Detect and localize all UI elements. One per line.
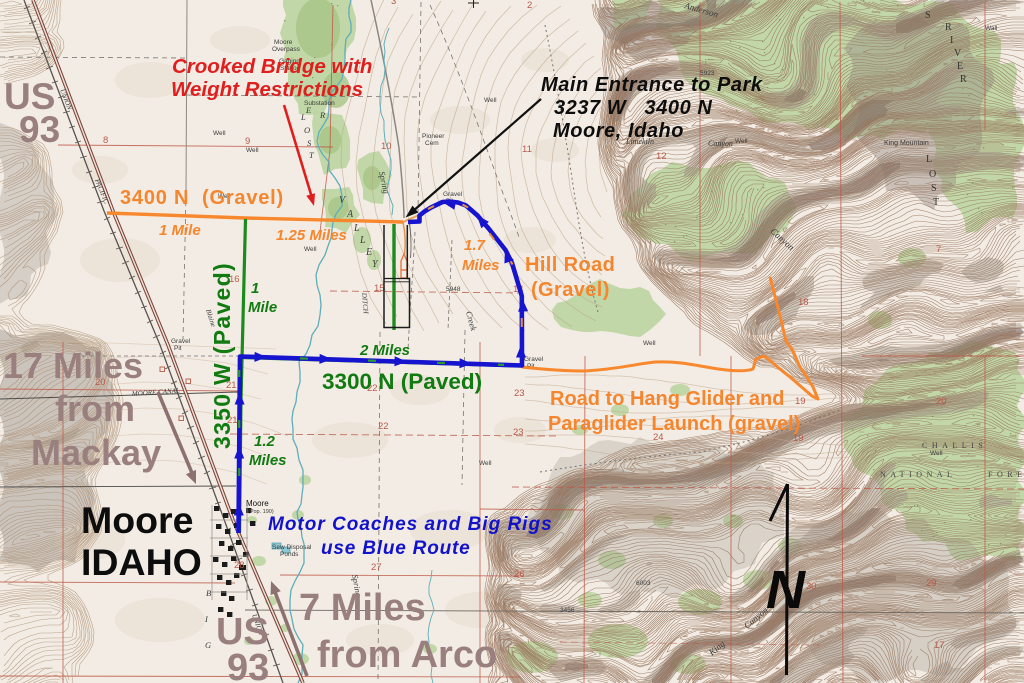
svg-text:Road to Hang Glider and: Road to Hang Glider and <box>550 388 784 410</box>
svg-text:King Mountain: King Mountain <box>884 140 929 147</box>
svg-text:from Arco: from Arco <box>317 634 497 676</box>
svg-text:17 Miles: 17 Miles <box>3 345 143 386</box>
svg-text:Gravel: Gravel <box>524 356 544 363</box>
svg-text:7: 7 <box>936 244 941 255</box>
svg-text:E: E <box>365 247 372 258</box>
svg-text:Canyon: Canyon <box>708 139 733 148</box>
svg-text:1.25 Miles: 1.25 Miles <box>276 227 347 244</box>
svg-text:Main Entrance to Park: Main Entrance to Park <box>541 74 763 96</box>
svg-text:20: 20 <box>936 396 947 407</box>
svg-text:1.2: 1.2 <box>254 433 276 450</box>
svg-text:Wall: Wall <box>985 25 998 32</box>
svg-text:Pit: Pit <box>174 345 182 352</box>
svg-text:Cem: Cem <box>425 140 439 147</box>
svg-text:23: 23 <box>513 427 524 438</box>
svg-text:3237 W 3400 N: 3237 W 3400 N <box>554 97 712 119</box>
svg-text:Gravel: Gravel <box>443 191 463 198</box>
svg-text:L: L <box>359 235 366 246</box>
svg-text:Well: Well <box>735 138 748 145</box>
svg-text:Moore, Idaho: Moore, Idaho <box>553 120 684 142</box>
svg-text:R: R <box>960 74 967 85</box>
svg-text:Well: Well <box>643 340 656 347</box>
svg-text:3: 3 <box>391 0 396 7</box>
svg-text:1.7: 1.7 <box>464 237 486 254</box>
svg-text:28: 28 <box>234 560 245 571</box>
svg-text:Well: Well <box>246 147 259 154</box>
svg-text:Mile: Mile <box>248 299 277 316</box>
svg-text:5948: 5948 <box>446 286 461 293</box>
svg-text:17: 17 <box>934 640 945 651</box>
svg-text:6003: 6003 <box>636 580 651 587</box>
svg-text:1 Mile: 1 Mile <box>159 222 201 239</box>
svg-text:A: A <box>346 209 354 220</box>
svg-text:L: L <box>926 154 932 165</box>
svg-text:Crooked Bridge with: Crooked Bridge with <box>172 55 372 78</box>
svg-text:19: 19 <box>795 396 806 407</box>
svg-text:CHALLIS: CHALLIS <box>922 441 987 450</box>
svg-text:S: S <box>931 183 937 194</box>
svg-text:T: T <box>933 197 939 208</box>
svg-text:1: 1 <box>251 280 259 297</box>
svg-text:3400 N (Gravel): 3400 N (Gravel) <box>120 187 284 209</box>
svg-text:12: 12 <box>656 151 667 162</box>
svg-text:18: 18 <box>798 297 809 308</box>
svg-text:Miles: Miles <box>249 452 287 469</box>
svg-text:FORES: FORES <box>988 470 1024 479</box>
svg-text:Overpass: Overpass <box>272 46 301 53</box>
svg-text:15: 15 <box>374 283 385 294</box>
svg-text:I: I <box>950 35 953 46</box>
svg-text:Well: Well <box>484 97 497 104</box>
svg-text:Gravel: Gravel <box>171 338 191 345</box>
svg-text:Weight Restrictions: Weight Restrictions <box>171 78 363 101</box>
svg-text:use Blue Route: use Blue Route <box>321 538 471 559</box>
svg-text:E: E <box>957 61 963 72</box>
svg-text:IDAHO: IDAHO <box>81 541 202 583</box>
svg-text:Paraglider Launch (gravel): Paraglider Launch (gravel) <box>548 413 800 435</box>
svg-text:22: 22 <box>378 421 389 432</box>
svg-text:93: 93 <box>227 647 269 683</box>
svg-text:G: G <box>205 640 211 650</box>
svg-text:Well: Well <box>479 460 492 467</box>
svg-text:B: B <box>206 588 211 598</box>
svg-text:3300 N (Paved): 3300 N (Paved) <box>322 369 482 394</box>
svg-text:3350 W (Paved): 3350 W (Paved) <box>209 262 235 449</box>
svg-text:2 Miles: 2 Miles <box>359 342 410 359</box>
svg-text:23: 23 <box>514 388 525 399</box>
svg-text:NATIONAL: NATIONAL <box>880 470 956 479</box>
svg-text:S: S <box>925 10 931 21</box>
svg-text:Well: Well <box>930 450 943 457</box>
svg-text:R: R <box>945 22 952 33</box>
svg-text:E: E <box>305 105 312 115</box>
svg-text:Well: Well <box>213 130 226 137</box>
svg-text:V: V <box>954 48 962 59</box>
svg-text:Ponds: Ponds <box>280 551 299 558</box>
svg-text:11: 11 <box>522 144 532 155</box>
svg-text:O: O <box>929 169 936 180</box>
svg-text:Miles: Miles <box>462 257 500 274</box>
svg-text:30: 30 <box>806 581 817 592</box>
svg-text:Sew Disposal: Sew Disposal <box>272 544 312 551</box>
svg-text:O: O <box>304 125 310 135</box>
svg-text:Hill Road: Hill Road <box>525 254 615 276</box>
svg-text:Motor Coaches and Big Rigs: Motor Coaches and Big Rigs <box>268 514 553 535</box>
svg-text:Pioneer: Pioneer <box>422 133 445 140</box>
svg-text:26: 26 <box>514 569 525 580</box>
svg-text:Moore: Moore <box>81 499 194 541</box>
svg-text:Mackay: Mackay <box>31 432 161 473</box>
svg-text:Moore: Moore <box>274 39 293 46</box>
svg-text:9: 9 <box>245 136 250 147</box>
svg-text:L: L <box>353 223 360 234</box>
svg-text:Moore: Moore <box>246 499 269 508</box>
svg-text:from: from <box>55 388 135 429</box>
svg-text:8: 8 <box>103 135 108 146</box>
svg-text:2: 2 <box>527 0 532 11</box>
svg-text:93: 93 <box>19 109 60 150</box>
svg-text:3456: 3456 <box>560 607 575 614</box>
svg-text:Well: Well <box>304 246 317 253</box>
svg-text:7 Miles: 7 Miles <box>299 587 426 629</box>
svg-text:R: R <box>319 110 326 120</box>
svg-text:N: N <box>766 560 806 620</box>
svg-text:10: 10 <box>381 141 392 152</box>
svg-text:29: 29 <box>926 578 937 589</box>
svg-text:(Gravel): (Gravel) <box>531 279 610 301</box>
svg-text:27: 27 <box>371 562 382 573</box>
